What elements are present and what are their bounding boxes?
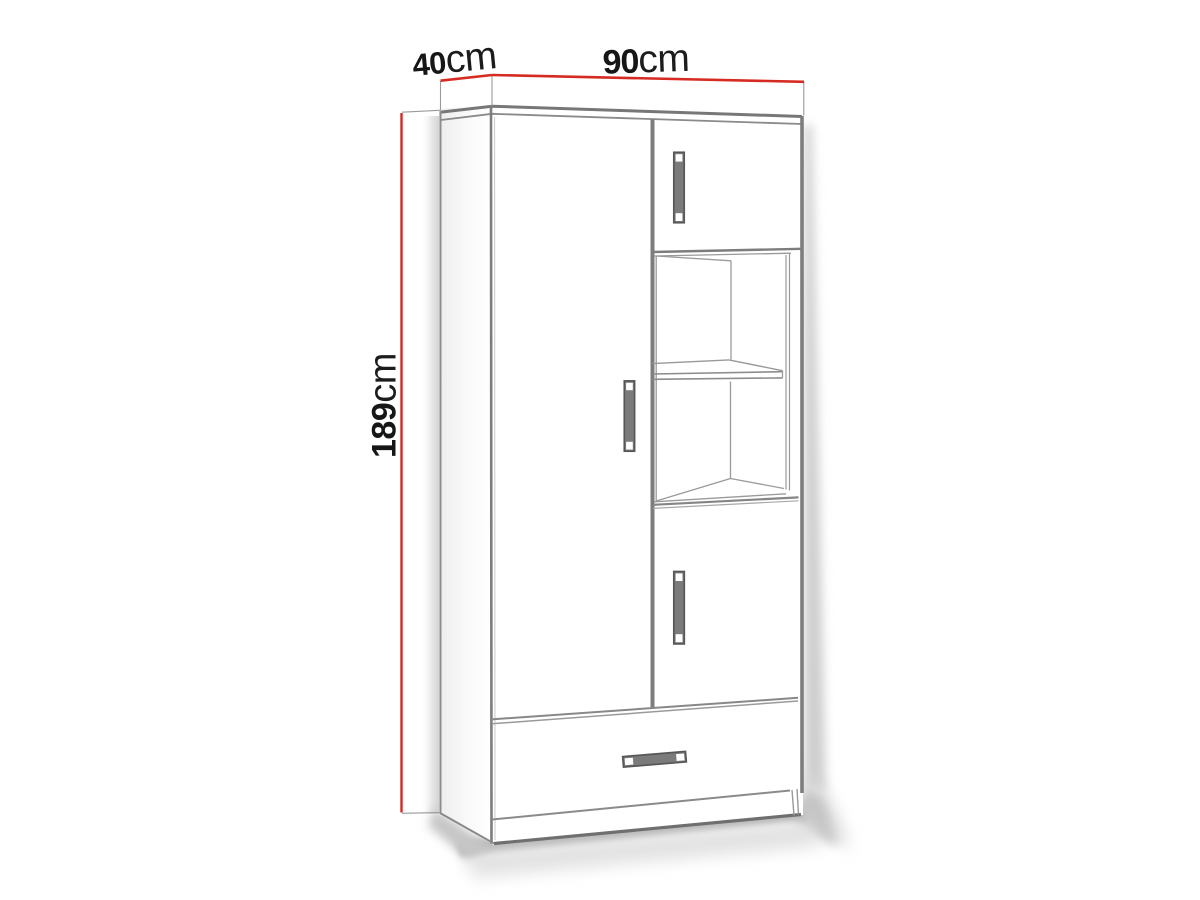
svg-text:189cm: 189cm	[363, 353, 405, 458]
svg-text:90cm: 90cm	[602, 37, 690, 83]
